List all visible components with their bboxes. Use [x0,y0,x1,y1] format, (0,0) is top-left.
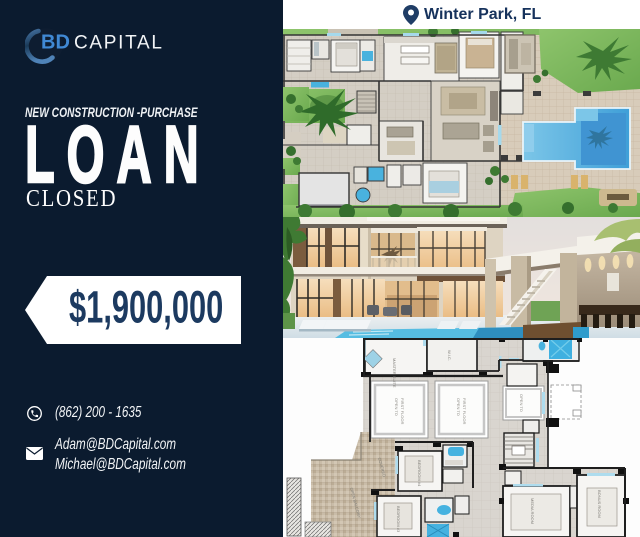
svg-text:MEDIA ROOM: MEDIA ROOM [530,498,535,524]
svg-text:OPEN TO: OPEN TO [456,398,461,416]
svg-text:BEDROOM #4: BEDROOM #4 [417,460,422,487]
svg-text:FIRST FLOOR: FIRST FLOOR [400,398,405,424]
svg-text:OPEN TO: OPEN TO [519,394,524,412]
svg-text:MASTER SUITE: MASTER SUITE [392,358,397,388]
svg-text:CAPITAL: CAPITAL [74,33,164,54]
svg-text:$1,900,000: $1,900,000 [69,283,223,333]
svg-text:OPEN TO: OPEN TO [394,398,399,416]
svg-text:BEDROOM #3: BEDROOM #3 [396,506,401,533]
svg-text:BD: BD [41,32,70,54]
svg-text:W.I.C.: W.I.C. [447,350,452,361]
svg-text:FIRST FLOOR: FIRST FLOOR [462,398,467,424]
svg-text:BONUS ROOM: BONUS ROOM [597,490,602,518]
